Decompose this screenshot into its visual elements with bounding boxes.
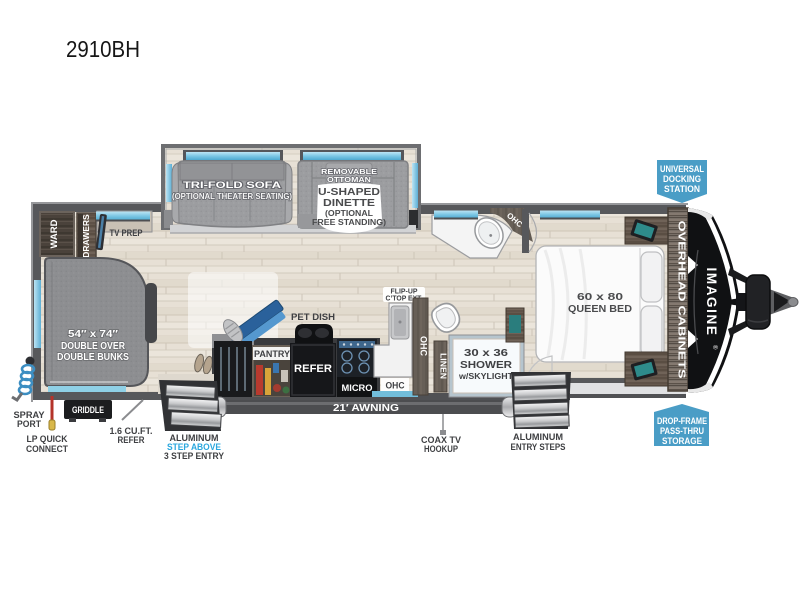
svg-text:IMAGINE: IMAGINE [704,268,719,337]
svg-text:LINEN: LINEN [439,353,448,379]
svg-text:PET DISH: PET DISH [291,312,335,322]
svg-text:STORAGE: STORAGE [662,436,702,446]
svg-text:OHC: OHC [419,336,429,357]
svg-text:3 STEP ENTRY: 3 STEP ENTRY [164,451,225,462]
svg-text:21′ AWNING: 21′ AWNING [333,402,399,414]
svg-text:ENTRY STEPS: ENTRY STEPS [511,442,566,453]
svg-text:2910BH: 2910BH [66,36,140,62]
svg-text:DOCKING: DOCKING [663,174,701,184]
svg-text:30 x 36: 30 x 36 [464,347,508,359]
svg-text:TRI-FOLD SOFA: TRI-FOLD SOFA [183,180,281,191]
svg-text:REFER: REFER [118,435,145,446]
svg-text:STATION: STATION [664,184,700,194]
svg-text:DRAWERS: DRAWERS [81,214,91,258]
svg-text:SHOWER: SHOWER [460,359,512,371]
svg-text:TV PREP: TV PREP [110,228,143,238]
svg-text:DOUBLE BUNKS: DOUBLE BUNKS [57,352,129,363]
svg-text:PASS-THRU: PASS-THRU [660,426,704,436]
svg-text:PORT: PORT [17,419,41,430]
svg-text:PANTRY: PANTRY [254,349,290,359]
svg-text:REFER: REFER [294,363,332,375]
svg-text:(OPTIONAL: (OPTIONAL [325,209,373,218]
svg-text:FLIP-UP: FLIP-UP [391,289,418,296]
svg-text:QUEEN BED: QUEEN BED [568,303,632,315]
svg-text:w/SKYLIGHT: w/SKYLIGHT [458,371,514,381]
svg-text:MICRO: MICRO [342,383,373,394]
svg-text:OHC: OHC [386,381,405,392]
svg-text:60 x 80: 60 x 80 [577,291,623,303]
svg-text:DROP-FRAME: DROP-FRAME [657,416,707,426]
svg-text:54″ x 74″: 54″ x 74″ [68,329,118,340]
svg-text:UNIVERSAL: UNIVERSAL [660,164,704,174]
svg-text:HOOKUP: HOOKUP [424,444,459,455]
svg-text:OVERHEAD CABINETS: OVERHEAD CABINETS [676,221,687,379]
svg-text:FREE STANDING): FREE STANDING) [312,218,386,227]
svg-text:CONNECT: CONNECT [26,444,68,455]
svg-text:®: ® [711,345,718,350]
svg-text:(OPTIONAL THEATER SEATING): (OPTIONAL THEATER SEATING) [172,192,292,201]
svg-text:DINETTE: DINETTE [323,197,375,209]
svg-text:OTTOMAN: OTTOMAN [327,175,371,184]
svg-text:DOUBLE OVER: DOUBLE OVER [61,341,126,352]
svg-text:WARD: WARD [49,219,60,248]
svg-text:GRIDDLE: GRIDDLE [72,405,104,416]
